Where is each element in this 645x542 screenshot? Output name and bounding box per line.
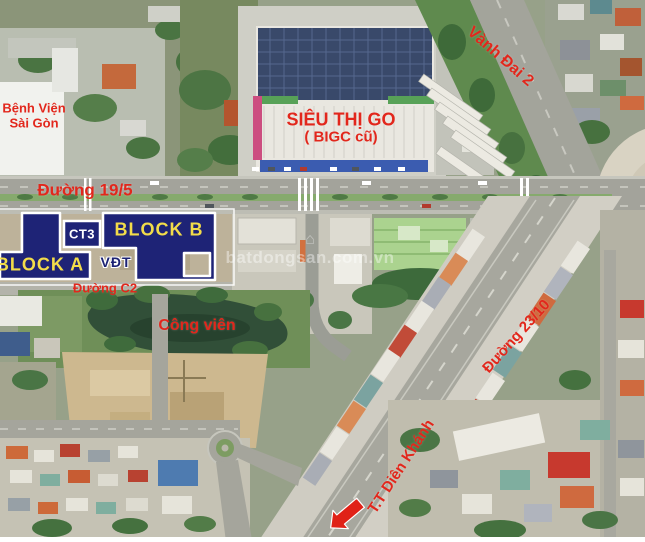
vdt-label: VĐT (101, 254, 132, 270)
hospital-label-line1: Bệnh Viện (2, 101, 65, 116)
ct3-label: CT3 (69, 227, 95, 242)
bottom-border (0, 537, 645, 542)
supermarket-label: SIÊU THỊ GO ( BIGC cũ) (286, 110, 395, 147)
block-b-label: BLOCK B (115, 220, 204, 241)
hospital-label-line2: Sài Gòn (2, 116, 65, 131)
direction-arrow-layer (0, 0, 645, 542)
block-a-label: BLOCK A (0, 255, 84, 276)
supermarket-label-line1: SIÊU THỊ GO (286, 110, 395, 130)
aerial-map-screenshot: ⌂ batdongsan.com.vn Bệnh Viện Sài Gòn SI… (0, 0, 645, 542)
road-c2-label: Đường C2 (73, 282, 137, 297)
hospital-label: Bệnh Viện Sài Gòn (2, 101, 65, 130)
park-label: Công viên (158, 317, 235, 335)
arrow-down-left-icon (323, 494, 368, 537)
supermarket-label-line2: ( BIGC cũ) (286, 130, 395, 147)
road-19-5-label: Đường 19/5 (37, 180, 132, 199)
